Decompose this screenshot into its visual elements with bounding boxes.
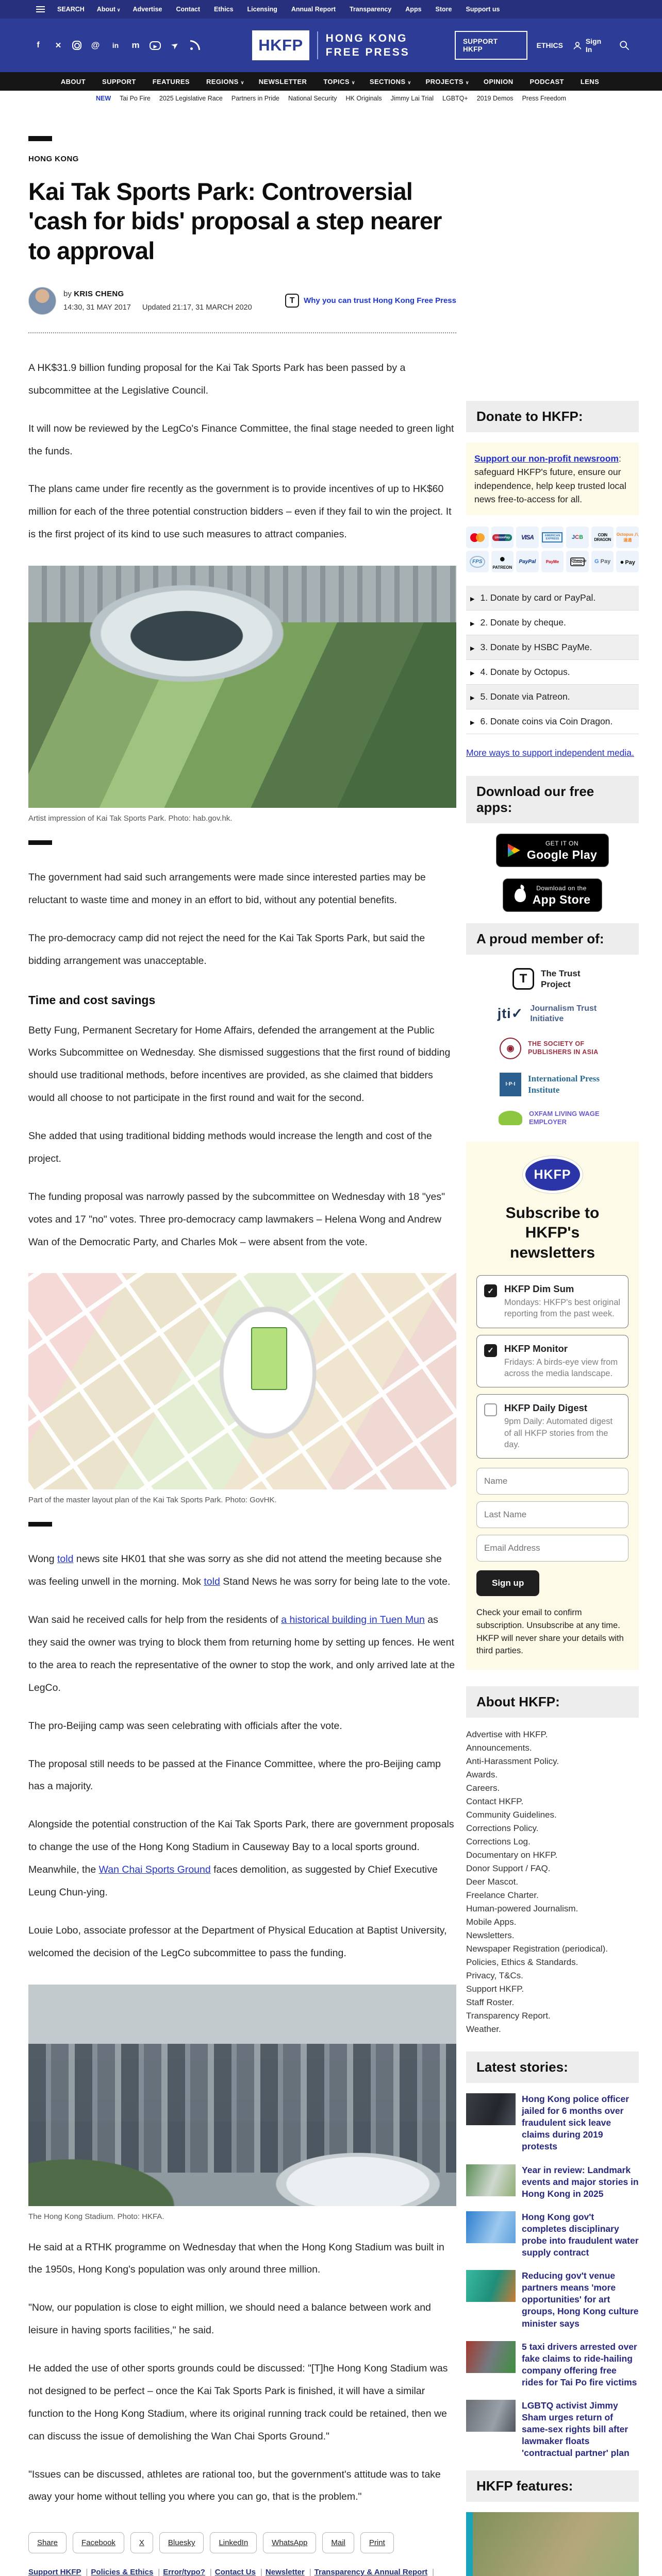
primary-nav-item[interactable]: PODCAST bbox=[530, 78, 566, 86]
trust-project-icon: T bbox=[285, 294, 299, 308]
accordion-label: 3. Donate by HSBC PayMe. bbox=[480, 642, 592, 653]
primary-nav: ABOUT SUPPORT FEATURES REGIONS∨ NEWSLETT… bbox=[0, 72, 662, 91]
member-name: Journalism Trust Initiative bbox=[530, 1004, 607, 1024]
published-time: 14:30, 31 MAY 2017 bbox=[63, 303, 131, 312]
subnav-topic-link[interactable]: Jimmy Lai Trial bbox=[391, 95, 434, 102]
top-utility-bar: SEARCH About∨ Advertise Contact Ethics L… bbox=[0, 0, 662, 19]
member-logo[interactable]: THE SOCIETY OF PUBLISHERS IN ASIA bbox=[466, 1038, 639, 1059]
payment-method-logo: UnionPay bbox=[492, 534, 512, 541]
payment-method-logo: G Pay bbox=[594, 558, 610, 565]
google-play-badge[interactable]: GET IT ONGoogle Play bbox=[496, 834, 609, 867]
sidebar-member-logos: The Trust Project Journalism Trust Initi… bbox=[466, 968, 639, 1126]
topbar-link[interactable]: Ethics bbox=[214, 6, 235, 13]
story-thumbnail bbox=[466, 2341, 516, 2373]
facebook-icon[interactable] bbox=[32, 39, 44, 52]
newsletter-option-desc: Mondays: HKFP's best original reporting … bbox=[504, 1297, 621, 1320]
about-link[interactable]: Careers. bbox=[466, 1782, 639, 1795]
subnav-topic-link[interactable]: Tai Po Fire bbox=[120, 95, 151, 102]
latest-stories-header: Latest stories: bbox=[466, 2052, 639, 2083]
payment-method-logo: PayPal bbox=[519, 559, 536, 565]
payment-method-tile: JCB bbox=[566, 527, 589, 548]
topbar-link[interactable]: Contact bbox=[176, 6, 202, 13]
accordion-label: 4. Donate by Octopus. bbox=[480, 667, 570, 677]
category-kicker[interactable]: HONG KONG bbox=[28, 155, 456, 163]
apple-icon bbox=[515, 889, 526, 902]
payment-method-logo: Cheque bbox=[570, 557, 585, 566]
topbar-link[interactable]: Advertise bbox=[133, 6, 164, 13]
feature-image: INTERVIEW bbox=[466, 2512, 639, 2576]
article-paragraph: He added the use of other sports grounds… bbox=[28, 2358, 456, 2448]
instagram-icon[interactable] bbox=[72, 41, 81, 50]
google-play-icon bbox=[508, 844, 520, 857]
latest-story-item[interactable]: Hong Kong gov't completes disciplinary p… bbox=[466, 2211, 639, 2259]
subnav-topic-link[interactable]: Press Freedom bbox=[522, 95, 566, 102]
share-button[interactable]: LinkedIn bbox=[210, 2532, 257, 2553]
member-name: THE SOCIETY OF PUBLISHERS IN ASIA bbox=[528, 1040, 605, 1056]
primary-nav-item[interactable]: LENS bbox=[581, 78, 601, 86]
share-button[interactable]: Share bbox=[28, 2532, 67, 2553]
post-footer-link[interactable]: Contact Us bbox=[215, 2568, 262, 2576]
payment-method-logo: PATREON bbox=[492, 553, 512, 570]
subnav-topic-link[interactable]: Partners in Pride bbox=[231, 95, 279, 102]
story-title: LGBTQ activist Jimmy Sham urges return o… bbox=[522, 2400, 639, 2459]
article-paragraph: The government had said such arrangement… bbox=[28, 867, 456, 912]
payment-method-tile: Octopus 八達通 bbox=[616, 527, 639, 548]
newsletter-option[interactable]: HKFP Dim Sum Mondays: HKFP's best origin… bbox=[476, 1275, 628, 1328]
share-button[interactable]: Bluesky bbox=[159, 2532, 204, 2553]
newsletter-box: HKFP Subscribe to HKFP's newsletters HKF… bbox=[466, 1142, 639, 1670]
payment-method-tile: UnionPay bbox=[491, 527, 514, 548]
primary-nav-item[interactable]: SECTIONS∨ bbox=[370, 78, 411, 86]
story-title: Hong Kong police officer jailed for 6 mo… bbox=[522, 2093, 639, 2153]
article-paragraph: "Issues can be discussed, athletes are r… bbox=[28, 2464, 456, 2509]
subnav-topic-link[interactable]: 2025 Legislative Race bbox=[159, 95, 223, 102]
payment-method-tile: FPS bbox=[466, 551, 489, 572]
donate-accordion-item[interactable]: 5. Donate via Patreon. bbox=[466, 685, 639, 709]
threads-icon[interactable] bbox=[89, 39, 102, 52]
subnav-topic-link[interactable]: LGBTQ+ bbox=[442, 95, 468, 102]
payment-method-logo: VISA bbox=[521, 534, 534, 541]
search-icon[interactable] bbox=[619, 40, 630, 51]
about-link[interactable]: Anti-Harassment Policy. bbox=[466, 1755, 639, 1768]
member-header: A proud member of: bbox=[466, 923, 639, 955]
topics-subnav: NEW Tai Po Fire2025 Legislative RacePart… bbox=[0, 91, 662, 106]
x-icon[interactable] bbox=[52, 39, 64, 52]
latest-stories: Hong Kong police officer jailed for 6 mo… bbox=[466, 2093, 639, 2459]
payment-method-logo: PayMe bbox=[546, 560, 559, 564]
newsletter-option[interactable]: HKFP Monitor Fridays: A birds-eye view f… bbox=[476, 1335, 628, 1388]
primary-nav-item[interactable]: PROJECTS∨ bbox=[426, 78, 469, 86]
support-hkfp-button[interactable]: SUPPORT HKFP bbox=[455, 31, 527, 60]
topbar-link[interactable]: Store bbox=[436, 6, 454, 13]
article-paragraph: The pro-democracy camp did not reject th… bbox=[28, 927, 456, 973]
paragraph-divider bbox=[28, 840, 52, 845]
logo-wordmark: HONG KONGFREE PRESS bbox=[317, 31, 410, 60]
article-paragraph: The proposal still needs to be passed at… bbox=[28, 1753, 456, 1799]
donate-accordion-item[interactable]: 6. Donate coins via Coin Dragon. bbox=[466, 709, 639, 734]
donate-accordion-item[interactable]: 1. Donate by card or PayPal. bbox=[466, 586, 639, 611]
image-caption: The Hong Kong Stadium. Photo: HKFA. bbox=[28, 2212, 456, 2221]
member-icon bbox=[499, 1111, 522, 1125]
subnav-topic-link[interactable]: National Security bbox=[288, 95, 337, 102]
caret-right-icon bbox=[470, 716, 474, 727]
ethics-link[interactable]: ETHICS bbox=[537, 41, 563, 49]
latest-story-item[interactable]: LGBTQ activist Jimmy Sham urges return o… bbox=[466, 2400, 639, 2459]
member-name: The Trust Project bbox=[541, 968, 592, 990]
story-thumbnail bbox=[466, 2093, 516, 2125]
payment-method-logo: FPS bbox=[470, 556, 485, 568]
article-paragraph: Wan said he received calls for help from… bbox=[28, 1609, 456, 1700]
article-title: Kai Tak Sports Park: Controversial 'cash… bbox=[28, 177, 456, 265]
about-link[interactable]: Transparency Report. bbox=[466, 2009, 639, 2023]
payment-method-tile: PayPal bbox=[516, 551, 539, 572]
site-header: HKFP HONG KONGFREE PRESS SUPPORT HKFP ET… bbox=[0, 19, 662, 72]
story-thumbnail bbox=[466, 2400, 516, 2432]
article-body: A HK$31.9 billion funding proposal for t… bbox=[28, 357, 456, 2509]
logo-acronym: HKFP bbox=[252, 30, 309, 60]
chevron-down-icon: ∨ bbox=[466, 80, 469, 85]
topbar-link[interactable]: Apps bbox=[405, 6, 423, 13]
story-thumbnail bbox=[466, 2211, 516, 2243]
member-name: OXFAM LIVING WAGE EMPLOYER bbox=[529, 1110, 606, 1127]
story-thumbnail bbox=[466, 2164, 516, 2196]
payment-method-tile: Pay bbox=[616, 551, 639, 572]
app-store-badge[interactable]: Download on theApp Store bbox=[503, 878, 603, 912]
accordion-label: 2. Donate by cheque. bbox=[480, 617, 566, 628]
post-footer-link[interactable]: Support HKFP bbox=[28, 2568, 88, 2576]
primary-nav-item[interactable]: NEWSLETTER bbox=[259, 78, 309, 86]
checkbox[interactable] bbox=[484, 1403, 497, 1416]
byline-prefix: by bbox=[63, 290, 72, 298]
inline-link[interactable]: Wan Chai Sports Ground bbox=[99, 1864, 211, 1875]
support-newsroom-link[interactable]: Support our non-profit newsroom bbox=[474, 453, 619, 464]
article-image-stadium bbox=[28, 1985, 456, 2206]
about-link[interactable]: Community Guidelines. bbox=[466, 1808, 639, 1822]
inline-link[interactable]: a historical building in Tuen Mun bbox=[281, 1614, 425, 1625]
newsletter-option-title: HKFP Dim Sum bbox=[504, 1283, 621, 1295]
post-footer-link[interactable]: Transparency & Annual Report bbox=[315, 2568, 434, 2576]
topbar-link[interactable]: Licensing bbox=[247, 6, 279, 13]
about-link[interactable]: Mobile Apps. bbox=[466, 1916, 639, 1929]
payment-method-logo: JCB bbox=[572, 534, 583, 540]
about-link[interactable]: Support HKFP. bbox=[466, 1982, 639, 1996]
about-link[interactable]: Documentary on HKFP. bbox=[466, 1849, 639, 1862]
story-title: 5 taxi drivers arrested over fake claims… bbox=[522, 2341, 639, 2388]
share-buttons: ShareFacebookXBlueskyLinkedInWhatsAppMai… bbox=[28, 2532, 456, 2553]
about-link[interactable]: Weather. bbox=[466, 2023, 639, 2036]
latest-story-item[interactable]: 5 taxi drivers arrested over fake claims… bbox=[466, 2341, 639, 2388]
about-link[interactable]: Policies, Ethics & Standards. bbox=[466, 1956, 639, 1969]
article-paragraph: "Now, our population is close to eight m… bbox=[28, 2297, 456, 2342]
member-icon bbox=[500, 1073, 521, 1096]
about-link[interactable]: Contact HKFP. bbox=[466, 1795, 639, 1808]
chevron-down-icon: ∨ bbox=[352, 80, 355, 85]
about-link[interactable]: Staff Roster. bbox=[466, 1996, 639, 2009]
more-ways-link[interactable]: More ways to support independent media. bbox=[466, 748, 639, 758]
sidebar: Donate to HKFP: Support our non-profit n… bbox=[466, 106, 639, 2576]
share-button[interactable]: Print bbox=[360, 2532, 394, 2553]
payment-method-tile: mastercard bbox=[466, 527, 489, 548]
post-footer-link[interactable]: Newsletter bbox=[266, 2568, 311, 2576]
donate-accordion: 1. Donate by card or PayPal. 2. Donate b… bbox=[466, 586, 639, 734]
caret-right-icon bbox=[470, 667, 474, 677]
payment-method-tile: PayMe bbox=[541, 551, 564, 572]
apps-header: Download our free apps: bbox=[466, 776, 639, 823]
share-button[interactable]: X bbox=[130, 2532, 153, 2553]
payment-method-logo: mastercard bbox=[470, 533, 485, 542]
caret-right-icon bbox=[470, 617, 474, 628]
image-caption: Part of the master layout plan of the Ka… bbox=[28, 1496, 456, 1504]
newsletter-note: Check your email to confirm subscription… bbox=[476, 1606, 628, 1657]
primary-nav-item[interactable]: SUPPORT bbox=[102, 78, 138, 86]
accordion-label: 6. Donate coins via Coin Dragon. bbox=[480, 716, 613, 727]
story-title: Hong Kong gov't completes disciplinary p… bbox=[522, 2211, 639, 2259]
checkbox[interactable] bbox=[484, 1344, 497, 1357]
linkedin-icon[interactable] bbox=[109, 39, 122, 52]
donate-accordion-item[interactable]: 4. Donate by Octopus. bbox=[466, 660, 639, 685]
article-divider bbox=[28, 332, 456, 333]
features-header: HKFP features: bbox=[466, 2470, 639, 2502]
sidebar-payment-methods: mastercard UnionPay VISA AMERICAN EXPRES… bbox=[466, 527, 639, 572]
kicker-bar bbox=[28, 136, 52, 141]
sign-up-button[interactable]: Sign up bbox=[476, 1570, 539, 1596]
about-link[interactable]: Privacy, T&Cs. bbox=[466, 1969, 639, 1982]
payment-method-tile: COIN DRAGON bbox=[591, 527, 614, 548]
article-paragraph: He said at a RTHK programme on Wednesday… bbox=[28, 2236, 456, 2282]
story-title: Year in review: Landmark events and majo… bbox=[522, 2164, 639, 2200]
hkfp-strip bbox=[466, 2512, 473, 2576]
payment-method-tile: Cheque bbox=[566, 551, 589, 572]
article-paragraph: It will now be reviewed by the LegCo's F… bbox=[28, 418, 456, 463]
accordion-label: 5. Donate via Patreon. bbox=[480, 691, 570, 702]
caret-right-icon bbox=[470, 592, 474, 603]
menu-icon[interactable] bbox=[36, 6, 45, 12]
article-figure: The Hong Kong Stadium. Photo: HKFA. bbox=[28, 1985, 456, 2221]
sign-in-link[interactable]: Sign In bbox=[572, 37, 609, 54]
accordion-label: 1. Donate by card or PayPal. bbox=[480, 592, 595, 603]
rss-icon[interactable] bbox=[189, 39, 201, 52]
about-link[interactable]: Human-powered Journalism. bbox=[466, 1902, 639, 1916]
inline-link[interactable]: told bbox=[57, 1553, 73, 1565]
about-link[interactable]: Newsletters. bbox=[466, 1929, 639, 1942]
newsletter-option-title: HKFP Monitor bbox=[504, 1343, 621, 1354]
member-logo[interactable]: Journalism Trust Initiative bbox=[466, 1004, 639, 1024]
article-paragraph: The plans came under fire recently as th… bbox=[28, 478, 456, 546]
donate-header: Donate to HKFP: bbox=[466, 401, 639, 432]
member-logo[interactable]: International Press Institute bbox=[466, 1073, 639, 1096]
mastodon-icon[interactable] bbox=[129, 39, 142, 52]
checkbox[interactable] bbox=[484, 1284, 497, 1297]
payment-method-tile: AMERICAN EXPRESS bbox=[541, 527, 564, 548]
donate-accordion-item[interactable]: 2. Donate by cheque. bbox=[466, 611, 639, 635]
post-footer-link[interactable]: Error/typo? bbox=[163, 2568, 212, 2576]
article-paragraph: A HK$31.9 billion funding proposal for t… bbox=[28, 357, 456, 402]
first-name-input[interactable] bbox=[476, 1468, 628, 1495]
article-paragraph: Alongside the potential construction of … bbox=[28, 1814, 456, 1904]
topbar-link[interactable]: Transparency bbox=[350, 6, 393, 13]
trust-link[interactable]: Why you can trust Hong Kong Free Press bbox=[304, 296, 456, 305]
share-button[interactable]: Mail bbox=[322, 2532, 354, 2553]
about-link[interactable]: Corrections Policy. bbox=[466, 1822, 639, 1835]
article-paragraph: She added that using traditional bidding… bbox=[28, 1125, 456, 1171]
image-caption: Artist impression of Kai Tak Sports Park… bbox=[28, 814, 456, 823]
subnav-topic-link[interactable]: HK Originals bbox=[346, 95, 382, 102]
new-badge: NEW bbox=[96, 95, 111, 102]
payment-method-logo: COIN DRAGON bbox=[591, 533, 614, 542]
primary-nav-item[interactable]: ABOUT bbox=[61, 78, 88, 86]
author-avatar[interactable] bbox=[28, 287, 56, 315]
feature-stories: INTERVIEW From city boy to wildlife mave… bbox=[466, 2512, 639, 2576]
post-footer-link[interactable]: Policies & Ethics bbox=[91, 2568, 160, 2576]
section-heading: Time and cost savings bbox=[28, 993, 456, 1007]
article-image-map bbox=[28, 1273, 456, 1489]
about-header: About HKFP: bbox=[466, 1686, 639, 1718]
about-link[interactable]: Deer Mascot. bbox=[466, 1875, 639, 1889]
hkfp-oval-logo: HKFP bbox=[523, 1156, 583, 1193]
payment-method-logo: AMERICAN EXPRESS bbox=[542, 532, 562, 543]
primary-nav-item[interactable]: OPINION bbox=[484, 78, 516, 86]
author-link[interactable]: KRIS CHENG bbox=[74, 290, 124, 298]
caret-right-icon bbox=[470, 691, 474, 702]
member-icon bbox=[500, 1038, 521, 1059]
site-logo[interactable]: HKFP HONG KONGFREE PRESS bbox=[252, 30, 409, 60]
latest-story-item[interactable]: Year in review: Landmark events and majo… bbox=[466, 2164, 639, 2200]
story-title: Reducing gov't venue partners means 'mor… bbox=[522, 2270, 639, 2329]
newsletter-title: Subscribe to HKFP's newsletters bbox=[488, 1204, 617, 1263]
payment-method-tile: PATREON bbox=[491, 551, 514, 572]
share-button[interactable]: Facebook bbox=[73, 2532, 124, 2553]
about-link[interactable]: Freelance Charter. bbox=[466, 1889, 639, 1902]
about-link[interactable]: Donor Support / FAQ. bbox=[466, 1862, 639, 1875]
subnav-topic-link[interactable]: 2019 Demos bbox=[477, 95, 514, 102]
latest-story-item[interactable]: Reducing gov't venue partners means 'mor… bbox=[466, 2270, 639, 2329]
chevron-down-icon: ∨ bbox=[117, 7, 121, 12]
article-paragraph: The pro-Beijing camp was seen celebratin… bbox=[28, 1715, 456, 1738]
article-paragraph: Wong told news site HK01 that she was so… bbox=[28, 1548, 456, 1594]
newsletter-option-title: HKFP Daily Digest bbox=[504, 1402, 621, 1414]
chevron-down-icon: ∨ bbox=[408, 80, 411, 85]
article-paragraph: The funding proposal was narrowly passed… bbox=[28, 1186, 456, 1254]
primary-nav-item[interactable]: FEATURES bbox=[153, 78, 192, 86]
paragraph-divider bbox=[28, 1522, 52, 1527]
article-figure: Part of the master layout plan of the Ka… bbox=[28, 1273, 456, 1504]
newsletter-option-desc: Fridays: A birds-eye view from across th… bbox=[504, 1357, 621, 1380]
social-icons bbox=[32, 39, 207, 52]
share-button[interactable]: WhatsApp bbox=[263, 2532, 316, 2553]
updated-time: Updated 21:17, 31 MARCH 2020 bbox=[142, 303, 252, 312]
topbar-link[interactable]: Annual Report bbox=[291, 6, 337, 13]
search-link[interactable]: SEARCH bbox=[57, 6, 85, 13]
member-icon bbox=[512, 968, 534, 990]
payment-method-logo: Octopus 八達通 bbox=[616, 532, 639, 543]
article-image-render bbox=[28, 566, 456, 808]
about-link[interactable]: Announcements. bbox=[466, 1741, 639, 1755]
payment-method-tile: VISA bbox=[516, 527, 539, 548]
payment-method-tile: G Pay bbox=[591, 551, 614, 572]
byline: by KRIS CHENG 14:30, 31 MAY 2017 Updated… bbox=[28, 287, 456, 315]
payment-method-logo: Pay bbox=[620, 558, 635, 566]
newsletter-option[interactable]: HKFP Daily Digest 9pm Daily: Automated d… bbox=[476, 1394, 628, 1459]
primary-nav-item[interactable]: TOPICS∨ bbox=[323, 78, 355, 86]
about-link[interactable]: Advertise with HKFP. bbox=[466, 1728, 639, 1741]
latest-story-item[interactable]: Hong Kong police officer jailed for 6 mo… bbox=[466, 2093, 639, 2153]
member-icon bbox=[498, 1006, 524, 1022]
about-links: Advertise with HKFP.Announcements.Anti-H… bbox=[466, 1728, 639, 2036]
inline-link[interactable]: told bbox=[204, 1576, 220, 1587]
topbar-link[interactable]: Support us bbox=[466, 6, 501, 13]
member-logo[interactable]: OXFAM LIVING WAGE EMPLOYER bbox=[466, 1110, 639, 1127]
article-figure: Artist impression of Kai Tak Sports Park… bbox=[28, 566, 456, 823]
donate-accordion-item[interactable]: 3. Donate by HSBC PayMe. bbox=[466, 635, 639, 660]
about-link[interactable]: Corrections Log. bbox=[466, 1835, 639, 1849]
donate-lead: Support our non-profit newsroom: safegua… bbox=[466, 443, 639, 515]
feature-story-item[interactable]: INTERVIEW From city boy to wildlife mave… bbox=[466, 2512, 639, 2576]
article-paragraph: Betty Fung, Permanent Secretary for Home… bbox=[28, 1020, 456, 1110]
newsletter-option-desc: 9pm Daily: Automated digest of all HKFP … bbox=[504, 1416, 621, 1450]
email-input[interactable] bbox=[476, 1535, 628, 1562]
chevron-down-icon: ∨ bbox=[241, 80, 244, 85]
story-thumbnail bbox=[466, 2270, 516, 2302]
article-paragraph: Louie Lobo, associate professor at the D… bbox=[28, 1920, 456, 1965]
caret-right-icon bbox=[470, 642, 474, 653]
last-name-input[interactable] bbox=[476, 1501, 628, 1528]
post-footer-links: Support HKFPPolicies & EthicsError/typo?… bbox=[28, 2568, 456, 2576]
telegram-icon[interactable] bbox=[169, 39, 181, 52]
about-link[interactable]: Newspaper Registration (periodical). bbox=[466, 1942, 639, 1956]
user-icon bbox=[572, 40, 583, 50]
topbar-link[interactable]: About∨ bbox=[97, 6, 121, 13]
member-logo[interactable]: The Trust Project bbox=[466, 968, 639, 990]
member-name: International Press Institute bbox=[528, 1073, 605, 1095]
about-link[interactable]: Awards. bbox=[466, 1768, 639, 1782]
primary-nav-item[interactable]: REGIONS∨ bbox=[206, 78, 244, 86]
youtube-icon[interactable] bbox=[150, 41, 161, 50]
